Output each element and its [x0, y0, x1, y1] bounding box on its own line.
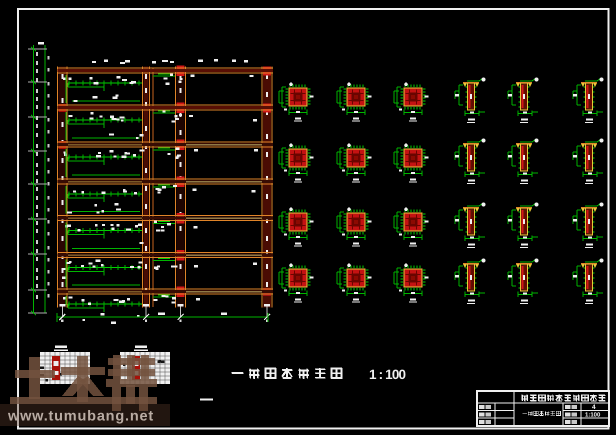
svg-text:1:100: 1:100	[585, 412, 601, 419]
svg-text:4: 4	[592, 404, 596, 411]
svg-text:1 : 100: 1 : 100	[369, 367, 407, 382]
svg-text:www.tumubang.net: www.tumubang.net	[7, 409, 154, 425]
